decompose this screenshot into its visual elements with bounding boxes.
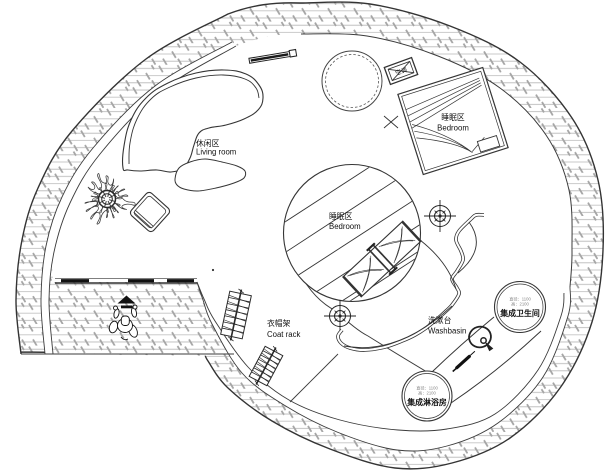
svg-text:Bedroom: Bedroom bbox=[437, 124, 469, 133]
svg-text:高：2100: 高：2100 bbox=[418, 390, 436, 397]
svg-text:Washbasin: Washbasin bbox=[428, 327, 466, 336]
svg-text:Coat rack: Coat rack bbox=[267, 330, 300, 339]
svg-text:睡眠区: 睡眠区 bbox=[329, 212, 353, 221]
svg-text:高：2100: 高：2100 bbox=[511, 301, 529, 308]
svg-text:睡眠区: 睡眠区 bbox=[441, 113, 465, 122]
svg-text:休闲区: 休闲区 bbox=[196, 138, 220, 148]
svg-text:衣帽架: 衣帽架 bbox=[267, 318, 291, 328]
svg-text:集成卫生间: 集成卫生间 bbox=[499, 308, 540, 318]
svg-text:集成淋浴房: 集成淋浴房 bbox=[406, 397, 447, 407]
svg-text:Living room: Living room bbox=[196, 148, 236, 157]
svg-text:洗漱台: 洗漱台 bbox=[428, 315, 452, 325]
svg-text:Bedroom: Bedroom bbox=[329, 222, 361, 231]
